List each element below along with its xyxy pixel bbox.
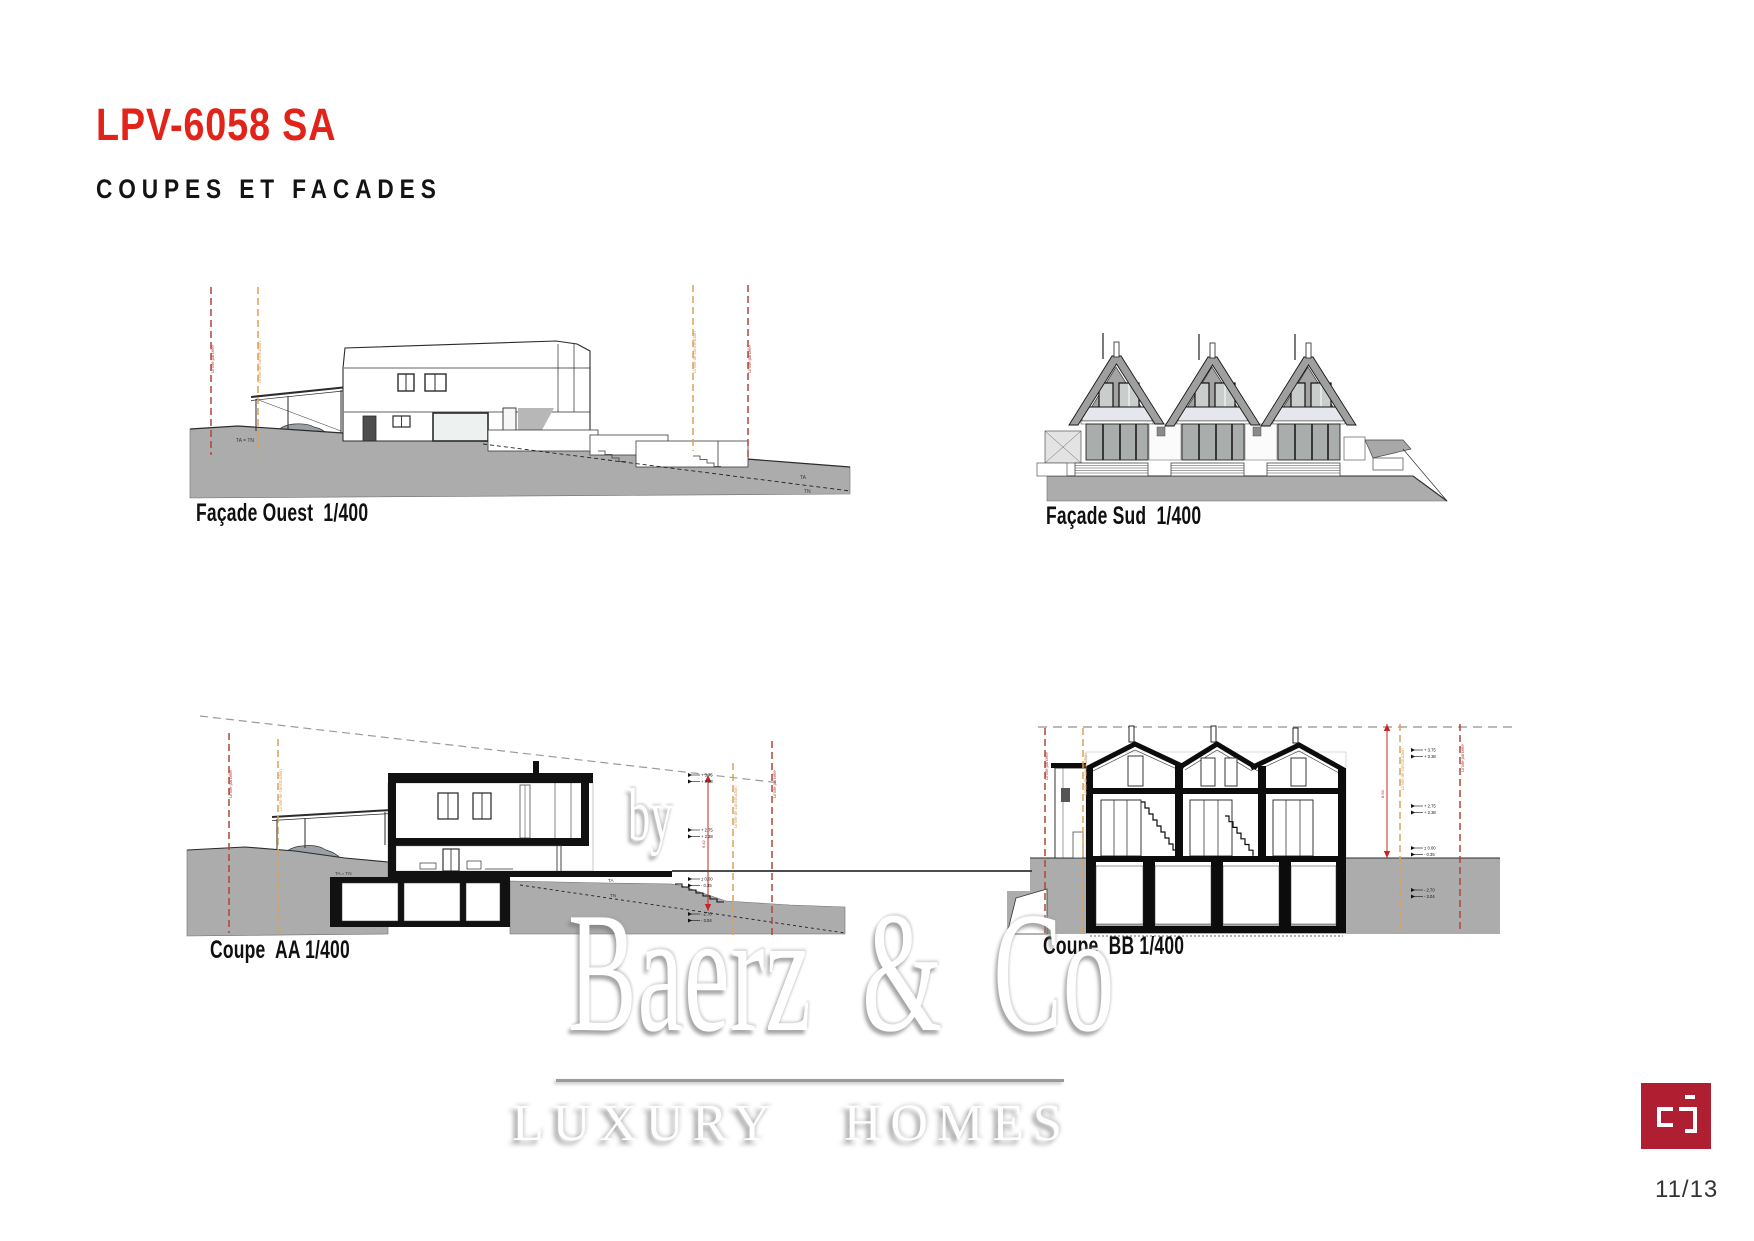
limit-parcel-label: Limite parcelle	[228, 770, 233, 798]
carport	[272, 810, 391, 849]
svg-text:+ 2.75: + 2.75	[1424, 804, 1436, 809]
svg-text:+ 3.38: + 3.38	[701, 779, 713, 784]
ta-tn-label: TA = TN	[335, 871, 352, 876]
ta-label: TA	[608, 878, 614, 883]
limit-parcel-label: Limite parcelle	[747, 345, 752, 373]
svg-text:- 3.04: - 3.04	[1424, 894, 1435, 899]
watermark-tagline: LUXURY HOMES	[512, 1098, 1071, 1150]
building-section	[1051, 726, 1346, 936]
page-subtitle: COUPES ET FACADES	[96, 174, 442, 205]
document-page: LPV-6058 SA COUPES ET FACADES	[0, 0, 1754, 1241]
limit-construction-label: Limite de construction	[733, 786, 738, 828]
svg-text:± 0.00: ± 0.00	[701, 877, 713, 882]
height-value-label: 8.64	[1380, 789, 1385, 798]
svg-text:- 0.35: - 0.35	[701, 883, 712, 888]
house-units	[1081, 367, 1345, 460]
altitude-limit-dashed-line	[200, 716, 780, 783]
caption-facade-sud: Façade Sud 1/400	[1046, 502, 1201, 531]
limit-construction-label: Limite de construction	[1083, 753, 1088, 795]
terrain	[1047, 476, 1447, 501]
coupe-aa-drawing: Limite parcelle Limite de construction L…	[185, 633, 865, 943]
figure-coupe-bb: Limite parcelle Limite de construction L…	[895, 640, 1515, 940]
entrance-stairs	[1075, 463, 1340, 476]
ta-label: TA	[800, 475, 807, 481]
terrain-right	[510, 881, 845, 934]
height-measure-line: 8.64	[1380, 724, 1390, 858]
svg-text:- 3.04: - 3.04	[701, 918, 712, 923]
facade-ouest-drawing: Limite parcelle Limite de construction L…	[188, 283, 858, 508]
caption-coupe-aa: Coupe AA 1/400	[210, 936, 350, 965]
limit-parcel-label: Limite parcelle	[1044, 752, 1049, 780]
brand-logo-icon	[1641, 1083, 1711, 1149]
svg-text:+ 2.38: + 2.38	[701, 834, 713, 839]
svg-text:+ 3.38: + 3.38	[1424, 754, 1436, 759]
limit-parcel-label: Limite parcelle	[210, 345, 215, 373]
svg-text:+ 2.38: + 2.38	[1424, 810, 1436, 815]
limit-construction-label: Limite de construction	[1400, 748, 1405, 790]
svg-text:± 0.00: ± 0.00	[1424, 846, 1436, 851]
tn-label: TN	[610, 893, 616, 898]
svg-text:- 2.70: - 2.70	[701, 912, 712, 917]
page-number: 11/13	[1655, 1176, 1718, 1204]
chimneys	[1103, 333, 1311, 360]
svg-text:+ 3.75: + 3.75	[1424, 748, 1436, 753]
svg-text:+ 3.75: + 3.75	[701, 773, 713, 778]
ta-tn-label: TA = TN	[236, 438, 254, 444]
caption-coupe-bb: Coupe BB 1/400	[1043, 932, 1184, 961]
terrace-datum-line	[672, 870, 1032, 872]
coupe-bb-drawing: Limite parcelle Limite de construction L…	[895, 640, 1515, 940]
figure-facade-ouest: Limite parcelle Limite de construction L…	[188, 283, 858, 508]
limit-construction-label: Limite de construction	[257, 341, 262, 383]
height-value-label: 6.42	[701, 839, 706, 848]
watermark-divider	[556, 1079, 1064, 1082]
page-title: LPV-6058 SA	[96, 99, 336, 151]
limit-construction-label: Limite de construction	[278, 769, 283, 811]
limit-construction-label: Limite de construction	[692, 331, 697, 373]
tn-label: TN	[804, 489, 811, 495]
caption-facade-ouest: Façade Ouest 1/400	[196, 499, 368, 528]
limit-parcel-label: Limite parcelle	[1460, 744, 1465, 772]
svg-text:- 2.70: - 2.70	[1424, 888, 1435, 893]
svg-text:- 0.35: - 0.35	[1424, 852, 1435, 857]
height-measure-line: 6.42	[701, 775, 711, 911]
svg-text:+ 2.75: + 2.75	[701, 828, 713, 833]
figure-facade-sud	[935, 297, 1465, 503]
house-elevation	[343, 341, 590, 441]
facade-sud-drawing	[935, 297, 1465, 503]
limit-parcel-label: Limite parcelle	[772, 770, 777, 798]
brand-logo	[1641, 1083, 1711, 1149]
figure-coupe-aa: Limite parcelle Limite de construction L…	[185, 633, 865, 943]
planters	[1037, 431, 1081, 476]
